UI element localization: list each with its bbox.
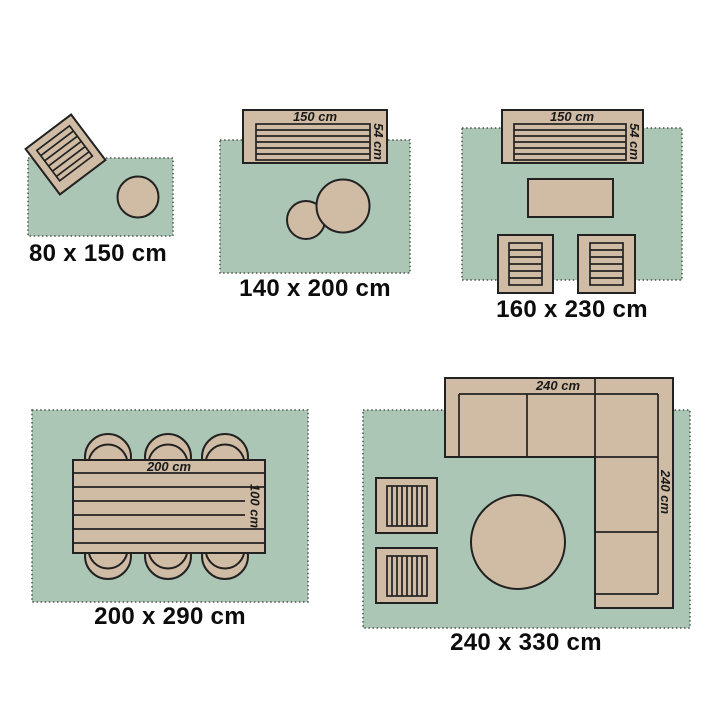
sofa-icon: 150 cm 54 cm bbox=[502, 109, 643, 163]
chair-icon bbox=[578, 235, 635, 293]
table-length-label: 200 cm bbox=[146, 459, 192, 474]
chair-icon bbox=[376, 478, 437, 533]
panel-200x290: 200 cm 100 cm 200 x 290 cm bbox=[32, 410, 308, 630]
size-label: 240 x 330 cm bbox=[450, 629, 602, 656]
panel-140x200: 150 cm 54 cm 140 x 200 cm bbox=[220, 109, 410, 302]
rug-size-guide-graphic: 80 x 150 cm 150 cm 54 cm 140 x 200 cm 15… bbox=[0, 0, 720, 720]
pouf-icon bbox=[118, 177, 159, 218]
sofa-icon: 150 cm 54 cm bbox=[243, 109, 387, 163]
sofa-width-label: 240 cm bbox=[535, 378, 581, 393]
size-label: 80 x 150 cm bbox=[29, 240, 167, 267]
sofa-width-label: 150 cm bbox=[293, 109, 338, 124]
size-label: 200 x 290 cm bbox=[94, 603, 246, 630]
panel-80x150: 80 x 150 cm bbox=[26, 115, 173, 267]
panel-240x330: 240 cm 240 cm 240 x 330 cm bbox=[363, 378, 690, 656]
table-width-label: 100 cm bbox=[248, 484, 263, 529]
coffee-table-icon bbox=[528, 179, 613, 217]
dining-table-icon: 200 cm 100 cm bbox=[73, 459, 265, 553]
sofa-depth-label: 240 cm bbox=[658, 469, 673, 515]
pouf-large-icon bbox=[317, 180, 370, 233]
chair-slats bbox=[392, 486, 422, 526]
size-label: 160 x 230 cm bbox=[496, 296, 648, 323]
chair-icon bbox=[498, 235, 553, 293]
chair-slats bbox=[392, 556, 422, 596]
sofa-depth-label: 54 cm bbox=[371, 123, 386, 160]
panel-160x230: 150 cm 54 cm 160 x 230 cm bbox=[462, 109, 682, 323]
chair-icon bbox=[376, 548, 437, 603]
sofa-width-label: 150 cm bbox=[550, 109, 595, 124]
rug-size-guide: 80 x 150 cm 150 cm 54 cm 140 x 200 cm 15… bbox=[0, 0, 720, 720]
sofa-depth-label: 54 cm bbox=[627, 123, 642, 160]
size-label: 140 x 200 cm bbox=[239, 275, 391, 302]
round-table-icon bbox=[471, 495, 565, 589]
